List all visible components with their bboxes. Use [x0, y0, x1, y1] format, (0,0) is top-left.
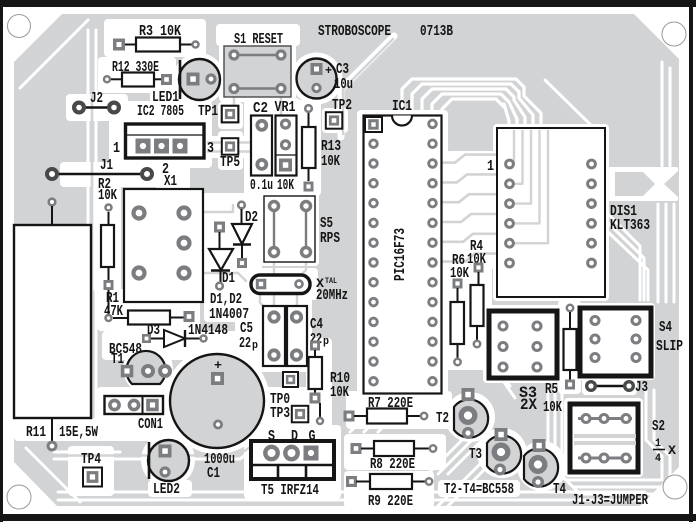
svg-text:VR1: VR1 [275, 100, 296, 116]
svg-text:S4: S4 [659, 320, 672, 336]
svg-text:T2-T4=BC558: T2-T4=BC558 [444, 482, 514, 498]
svg-text:TP3: TP3 [270, 406, 290, 422]
svg-text:D1: D1 [222, 271, 235, 287]
svg-text:TAL: TAL [325, 277, 337, 286]
svg-text:TP1: TP1 [198, 104, 218, 120]
svg-text:KLT363: KLT363 [610, 218, 650, 234]
svg-text:PIC16F73: PIC16F73 [393, 228, 409, 281]
svg-text:1N4148: 1N4148 [188, 323, 228, 339]
svg-text:C5: C5 [240, 321, 253, 337]
svg-text:10K: 10K [277, 178, 294, 194]
svg-text:J1: J1 [100, 158, 113, 174]
svg-text:0.1u: 0.1u [250, 178, 273, 194]
svg-text:+: + [214, 358, 222, 373]
svg-text:X1: X1 [164, 174, 177, 190]
svg-text:RPS: RPS [320, 231, 340, 247]
svg-text:20MHz: 20MHz [316, 288, 348, 304]
svg-text:T3: T3 [469, 447, 482, 463]
svg-text:3: 3 [207, 141, 214, 157]
svg-text:10K: 10K [321, 154, 340, 170]
svg-text:J3: J3 [635, 380, 648, 396]
svg-text:R5: R5 [545, 382, 558, 398]
svg-text:SLIP: SLIP [656, 339, 683, 355]
svg-text:4: 4 [655, 453, 661, 465]
svg-text:1: 1 [113, 141, 120, 157]
svg-text:J1-J3=JUMPER: J1-J3=JUMPER [572, 493, 648, 509]
svg-text:S5: S5 [320, 216, 333, 232]
svg-text:1: 1 [655, 438, 661, 450]
svg-text:D2: D2 [245, 210, 258, 226]
svg-text:22: 22 [239, 336, 251, 352]
svg-text:10K: 10K [543, 400, 562, 416]
svg-text:R11: R11 [26, 425, 46, 441]
svg-text:TP5: TP5 [220, 155, 240, 171]
svg-text:TP4: TP4 [81, 452, 101, 468]
svg-text:LED2: LED2 [153, 482, 180, 498]
svg-text:S2: S2 [652, 419, 665, 435]
svg-text:R8 220E: R8 220E [370, 457, 415, 473]
svg-text:p: p [323, 336, 329, 348]
svg-text:IC2 7805: IC2 7805 [137, 104, 184, 120]
svg-text:R13: R13 [321, 139, 341, 155]
svg-text:C4: C4 [310, 317, 323, 333]
svg-text:C1: C1 [207, 466, 220, 482]
svg-text:15E,5W: 15E,5W [59, 425, 98, 441]
svg-text:CON1: CON1 [138, 417, 163, 433]
svg-text:p: p [252, 340, 258, 352]
svg-text:T2: T2 [436, 411, 449, 427]
svg-text:10u: 10u [334, 77, 353, 93]
svg-text:D1,D2: D1,D2 [210, 292, 242, 308]
svg-text:IC1: IC1 [392, 99, 412, 115]
svg-text:1: 1 [487, 159, 494, 175]
svg-text:J2: J2 [90, 91, 103, 107]
svg-text:C3: C3 [336, 62, 349, 78]
svg-text:2X: 2X [520, 396, 538, 414]
svg-text:T4: T4 [553, 482, 566, 498]
svg-text:10K: 10K [330, 385, 349, 401]
svg-text:X: X [668, 443, 676, 458]
svg-text:10K: 10K [98, 188, 117, 204]
svg-text:STROBOSCOPE: STROBOSCOPE [318, 24, 391, 40]
svg-text:+: + [325, 64, 332, 78]
svg-text:0713B: 0713B [420, 24, 453, 40]
svg-text:T5 IRFZ14: T5 IRFZ14 [261, 483, 319, 499]
svg-text:R9 220E: R9 220E [368, 494, 413, 510]
